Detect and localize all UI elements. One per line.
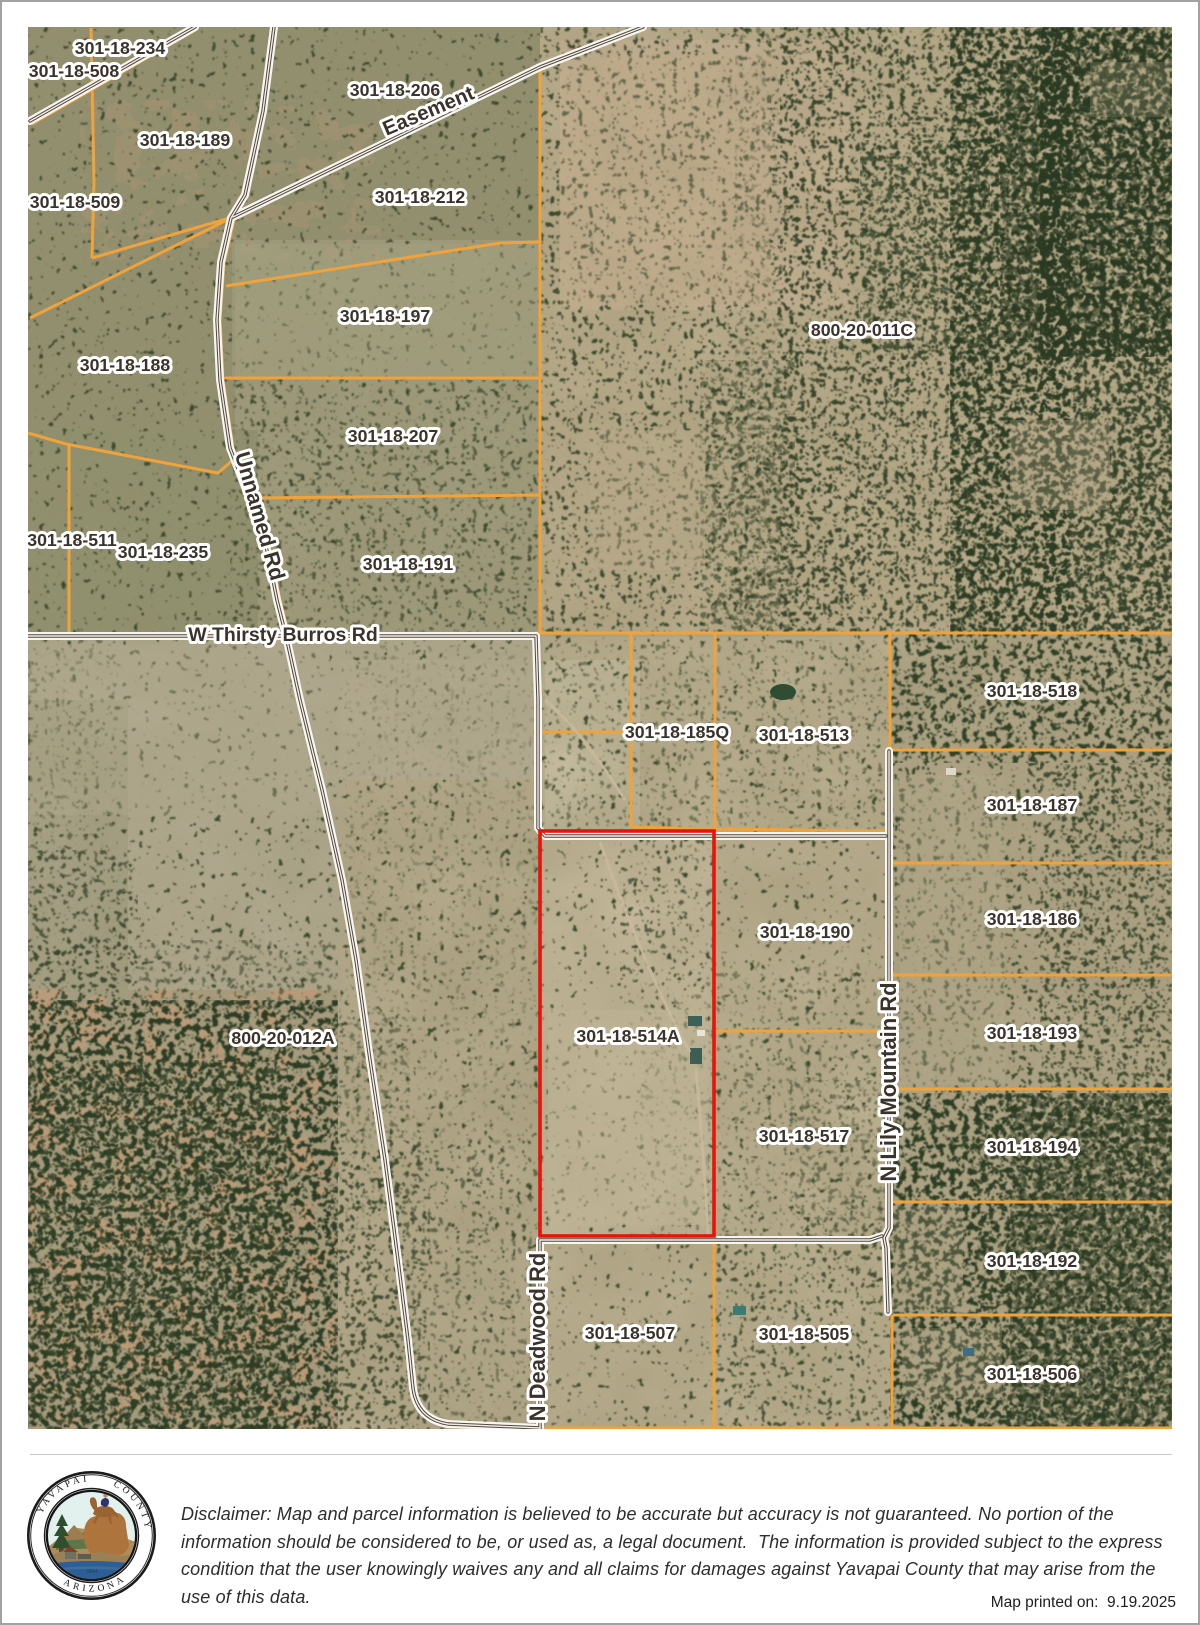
svg-text:301-18-514A: 301-18-514A	[576, 1026, 679, 1046]
svg-text:800-20-011C: 800-20-011C	[811, 320, 913, 340]
svg-text:301-18-508: 301-18-508	[29, 61, 120, 81]
svg-text:301-18-235: 301-18-235	[118, 542, 209, 562]
svg-text:301-18-513: 301-18-513	[759, 725, 850, 745]
svg-text:N Lily Mountain Rd: N Lily Mountain Rd	[876, 982, 901, 1181]
svg-text:301-18-197: 301-18-197	[340, 306, 431, 326]
svg-text:301-18-194: 301-18-194	[987, 1137, 1078, 1157]
svg-text:301-18-186: 301-18-186	[987, 909, 1078, 929]
svg-text:301-18-506: 301-18-506	[987, 1364, 1078, 1384]
svg-text:301-18-234: 301-18-234	[75, 38, 166, 58]
svg-text:301-18-207: 301-18-207	[348, 426, 439, 446]
svg-text:301-18-518: 301-18-518	[987, 681, 1078, 701]
svg-text:301-18-189: 301-18-189	[140, 130, 231, 150]
svg-text:301-18-517: 301-18-517	[759, 1126, 850, 1146]
svg-text:301-18-507: 301-18-507	[585, 1323, 676, 1343]
svg-text:301-18-191: 301-18-191	[363, 554, 454, 574]
svg-text:301-18-511: 301-18-511	[28, 530, 117, 550]
svg-text:N Deadwood Rd: N Deadwood Rd	[525, 1253, 550, 1422]
svg-text:301-18-188: 301-18-188	[80, 355, 171, 375]
svg-text:301-18-505: 301-18-505	[759, 1324, 850, 1344]
svg-text:301-18-193: 301-18-193	[987, 1023, 1078, 1043]
svg-text:301-18-190: 301-18-190	[760, 922, 851, 942]
svg-text:800-20-012A: 800-20-012A	[231, 1028, 334, 1048]
svg-text:W Thirsty Burros Rd: W Thirsty Burros Rd	[188, 624, 378, 646]
svg-text:301-18-185Q: 301-18-185Q	[625, 722, 729, 742]
svg-text:1864: 1864	[86, 1569, 98, 1575]
svg-text:301-18-187: 301-18-187	[987, 795, 1078, 815]
svg-text:301-18-509: 301-18-509	[30, 192, 121, 212]
svg-text:301-18-206: 301-18-206	[350, 80, 441, 100]
svg-text:301-18-212: 301-18-212	[375, 187, 466, 207]
svg-text:301-18-192: 301-18-192	[987, 1251, 1078, 1271]
